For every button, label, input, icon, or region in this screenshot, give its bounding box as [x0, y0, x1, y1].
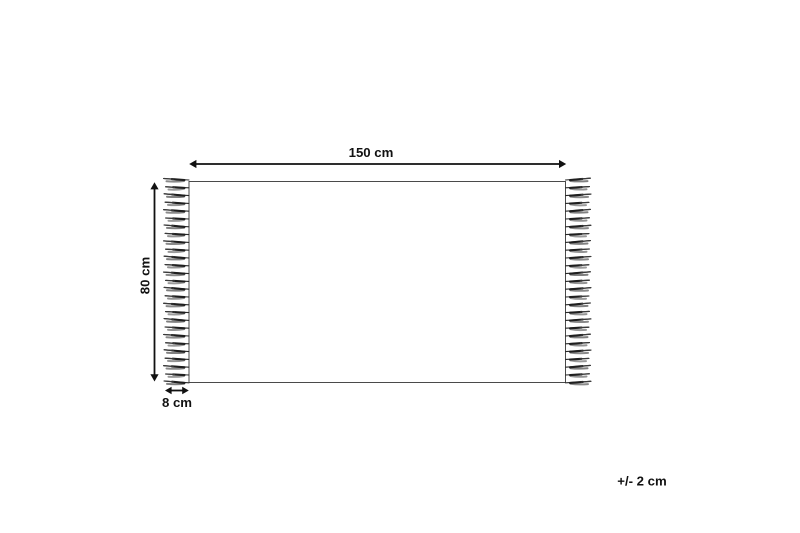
svg-text:150 cm: 150 cm: [349, 145, 394, 160]
svg-text:+/- 2 cm: +/- 2 cm: [617, 474, 666, 489]
svg-text:8 cm: 8 cm: [162, 395, 192, 410]
svg-text:80 cm: 80 cm: [138, 257, 153, 294]
